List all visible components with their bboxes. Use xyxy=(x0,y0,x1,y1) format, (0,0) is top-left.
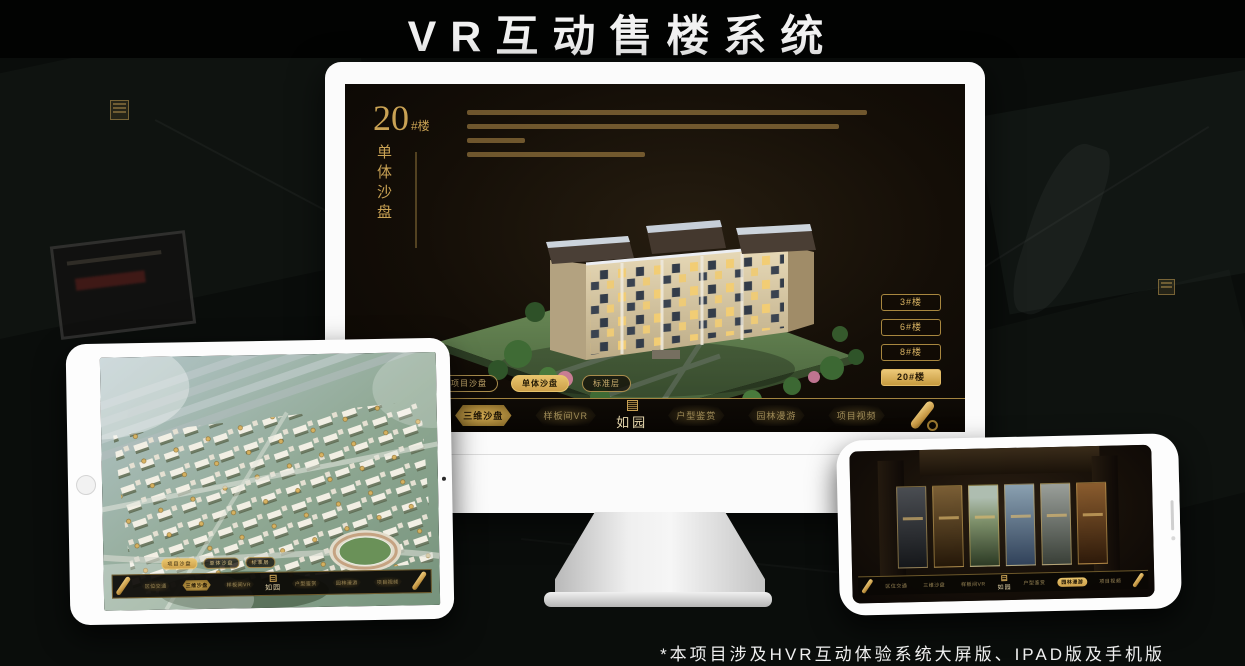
phone-notch xyxy=(1164,482,1181,560)
ceiling-beam xyxy=(919,446,1100,476)
phone-device: 区位交通 三维沙盘 样板间VR 如园 户型鉴赏 园林漫游 项目视频 xyxy=(836,433,1182,616)
footnote-text: *本项目涉及HVR互动体验系统大屏版、IPAD版及手机版 xyxy=(660,640,1165,665)
nav-item-3d-sandtable[interactable]: 三维沙盘 xyxy=(181,579,213,591)
tab-standard-floor[interactable]: 标准层 xyxy=(245,557,275,569)
gallery-panel-warm-interior[interactable] xyxy=(1076,482,1108,565)
building-number: 20 xyxy=(373,98,409,138)
seal-icon xyxy=(1001,575,1007,581)
gallery-panel-lobby[interactable] xyxy=(932,485,964,568)
gallery-panel-building[interactable] xyxy=(1004,483,1036,566)
building-button-3[interactable]: 3#楼 xyxy=(881,294,941,311)
nav-item-showroom-vr[interactable]: 样板间VR xyxy=(957,579,990,589)
nav-item-floorplan[interactable]: 户型鉴赏 xyxy=(1019,578,1049,588)
nav-item-location-traffic[interactable]: 区位交通 xyxy=(881,581,911,591)
nav-item-garden-roam[interactable]: 园林漫游 xyxy=(744,405,808,426)
building-button-8[interactable]: 8#楼 xyxy=(881,344,941,361)
page: VR互动售楼系统 20#楼 单体沙盘 xyxy=(0,0,1245,666)
nav-item-floorplan[interactable]: 户型鉴赏 xyxy=(664,405,728,426)
nav-item-garden-roam[interactable]: 园林漫游 xyxy=(1057,577,1087,587)
brand-logo: 如园 xyxy=(997,575,1011,591)
scroll-icon[interactable] xyxy=(862,579,873,594)
phone-screen: 区位交通 三维沙盘 样板间VR 如园 户型鉴赏 园林漫游 项目视频 xyxy=(849,445,1154,604)
section-subtitle-vertical: 单体沙盘 xyxy=(373,144,394,254)
brand-logo: 如园 xyxy=(265,575,281,593)
page-title: VR互动售楼系统 xyxy=(0,2,1245,64)
scroll-icon[interactable] xyxy=(1133,572,1144,587)
scroll-icon[interactable] xyxy=(117,576,131,596)
building-button-20[interactable]: 20#楼 xyxy=(881,369,941,386)
nav-item-location-traffic[interactable]: 区位交通 xyxy=(140,580,172,592)
seal-icon xyxy=(1158,279,1175,295)
brand-logo-text: 如园 xyxy=(997,582,1011,591)
tab-single-sandtable[interactable]: 单体沙盘 xyxy=(203,557,239,569)
nav-item-project-video[interactable]: 项目视频 xyxy=(1095,576,1125,586)
home-button[interactable] xyxy=(76,474,96,494)
tablet-device: 项目沙盘 单体沙盘 标准层 区位交通 三维沙盘 样板间VR 如园 户型鉴赏 园林… xyxy=(66,338,455,626)
tab-project-sandtable[interactable]: 项目沙盘 xyxy=(161,558,197,570)
gallery-panel-interior[interactable] xyxy=(896,486,928,569)
building-button-6[interactable]: 6#楼 xyxy=(881,319,941,336)
monitor-stand-base xyxy=(544,592,772,607)
seal-icon xyxy=(110,100,129,120)
gallery-panel-garden[interactable] xyxy=(968,484,1000,567)
building-number-suffix: #楼 xyxy=(411,119,430,133)
tab-standard-floor[interactable]: 标准层 xyxy=(582,375,631,392)
scroll-icon[interactable] xyxy=(905,401,939,431)
gallery-panels xyxy=(850,481,1154,570)
nav-item-floorplan[interactable]: 户型鉴赏 xyxy=(290,577,322,589)
monitor-subtabs: 项目沙盘 单体沙盘 标准层 xyxy=(440,375,631,392)
speaker-slit xyxy=(1170,500,1174,530)
seal-icon xyxy=(627,400,638,411)
tablet-subtabs: 项目沙盘 单体沙盘 标准层 xyxy=(161,557,275,570)
scroll-icon[interactable] xyxy=(412,571,426,591)
nav-item-showroom-vr[interactable]: 样板间VR xyxy=(221,579,256,591)
nav-item-project-video[interactable]: 项目视频 xyxy=(372,576,404,588)
brand-logo-text: 如园 xyxy=(265,583,281,593)
gallery-panel-courtyard[interactable] xyxy=(1040,483,1072,566)
camera-dot xyxy=(442,476,446,480)
nav-item-showroom-vr[interactable]: 样板间VR xyxy=(531,405,600,426)
camera-dot xyxy=(1171,536,1175,540)
building-selector: 3#楼 6#楼 8#楼 20#楼 xyxy=(881,294,941,386)
brand-logo-text: 如园 xyxy=(616,412,648,431)
nav-item-3d-sandtable[interactable]: 三维沙盘 xyxy=(919,580,949,590)
tablet-screen: 项目沙盘 单体沙盘 标准层 区位交通 三维沙盘 样板间VR 如园 户型鉴赏 园林… xyxy=(100,352,440,611)
nav-item-garden-roam[interactable]: 园林漫游 xyxy=(331,577,363,589)
nav-item-3d-sandtable[interactable]: 三维沙盘 xyxy=(451,405,515,426)
seal-icon xyxy=(269,575,276,582)
brand-logo: 如园 xyxy=(616,400,648,431)
monitor-stand xyxy=(555,512,765,596)
tab-single-sandtable[interactable]: 单体沙盘 xyxy=(511,375,569,392)
nav-item-project-video[interactable]: 项目视频 xyxy=(825,405,889,426)
description-text-lines xyxy=(467,110,867,166)
background-certificate-frame xyxy=(50,230,196,340)
